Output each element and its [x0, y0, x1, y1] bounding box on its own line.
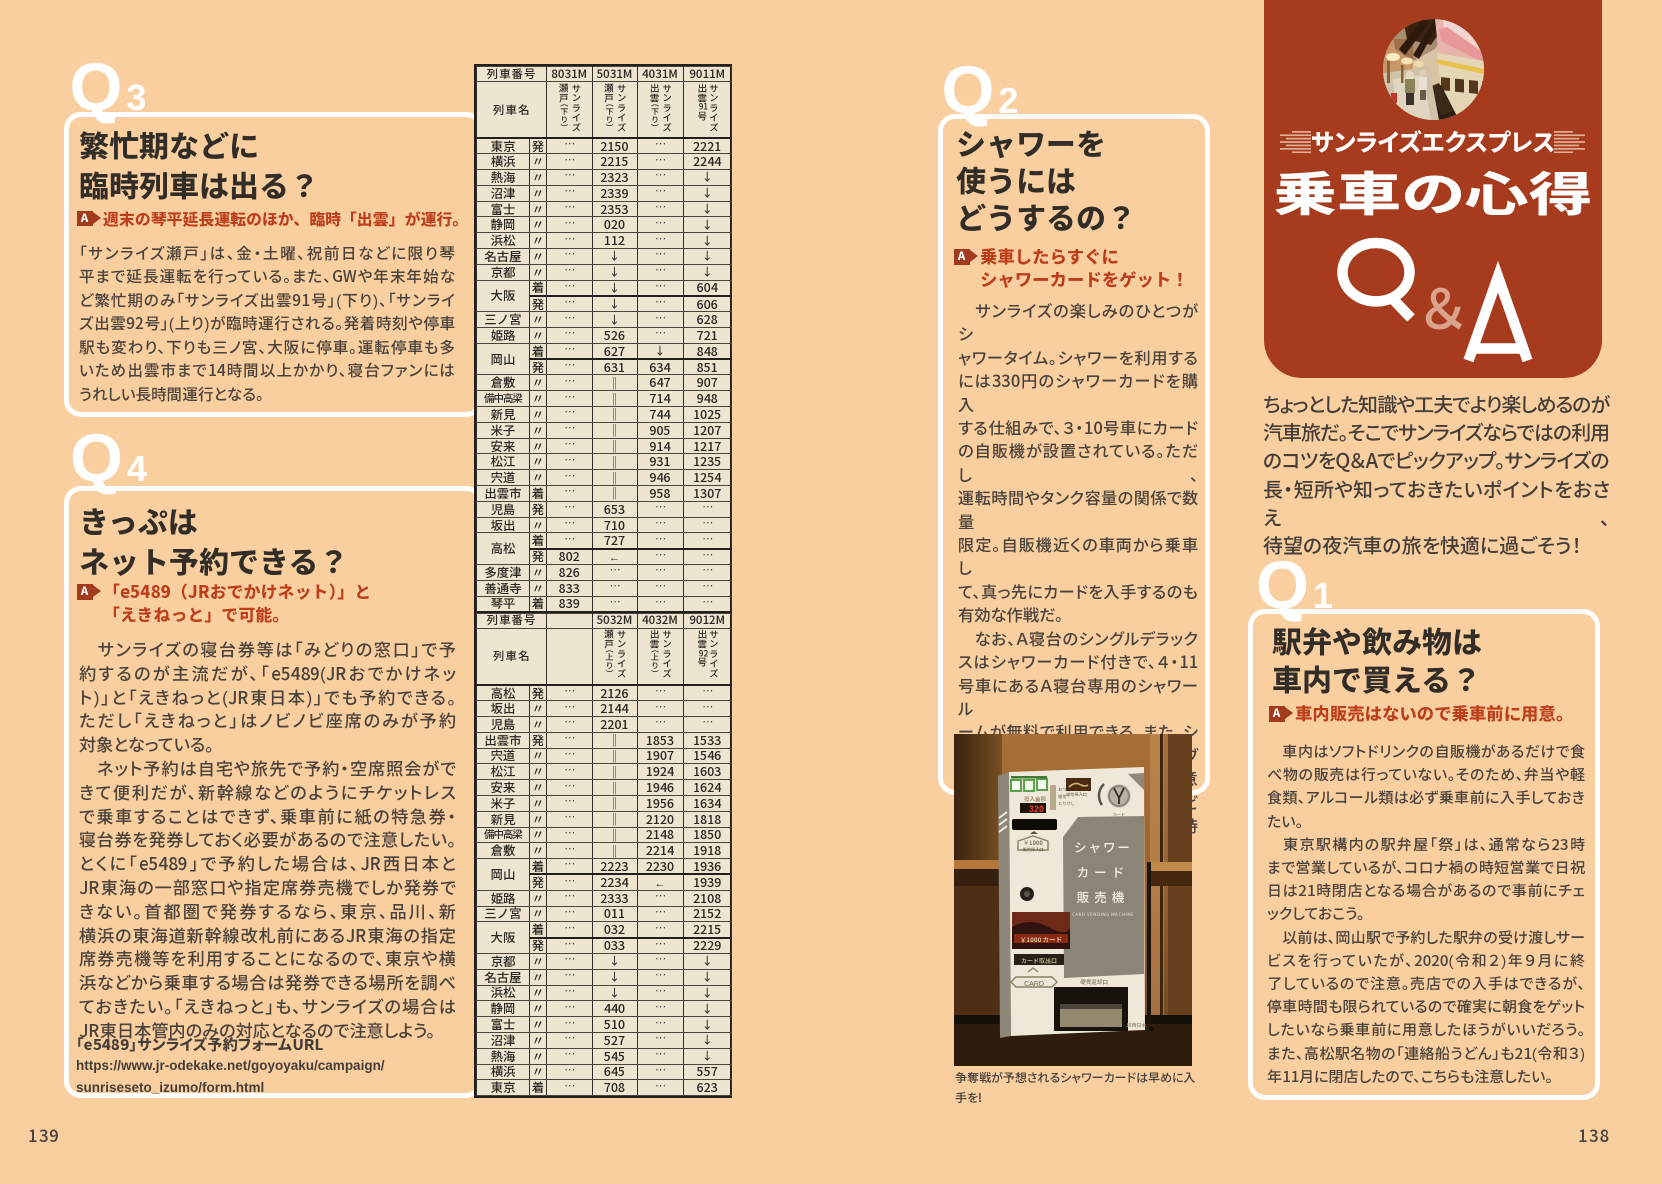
- svg-text:CARD: CARD: [1024, 981, 1044, 988]
- svg-text:紙幣挿入口: 紙幣挿入口: [1066, 791, 1087, 798]
- svg-text:販売機: 販売機: [1077, 887, 1130, 906]
- svg-text:シャワー: シャワー: [1074, 837, 1132, 856]
- svg-text:カード取出口: カード取出口: [1021, 956, 1057, 965]
- svg-text:￥1000: ￥1000: [1023, 838, 1043, 847]
- svg-text:320: 320: [1029, 804, 1044, 814]
- svg-text:＆: ＆: [1415, 265, 1470, 345]
- svg-text:紙幣挿入口: 紙幣挿入口: [1023, 846, 1044, 853]
- svg-text:投入金額: 投入金額: [1024, 795, 1047, 803]
- svg-text:とりけし: とりけし: [1058, 801, 1076, 807]
- svg-text:カード: カード: [1077, 862, 1130, 881]
- svg-text:￥1000 カード: ￥1000 カード: [1020, 934, 1062, 944]
- svg-text:JR西日本: JR西日本: [1124, 1022, 1146, 1029]
- svg-text:硬貨返却口: 硬貨返却口: [1080, 978, 1108, 986]
- svg-text:CARD VENDING MACHINE: CARD VENDING MACHINE: [1072, 912, 1134, 918]
